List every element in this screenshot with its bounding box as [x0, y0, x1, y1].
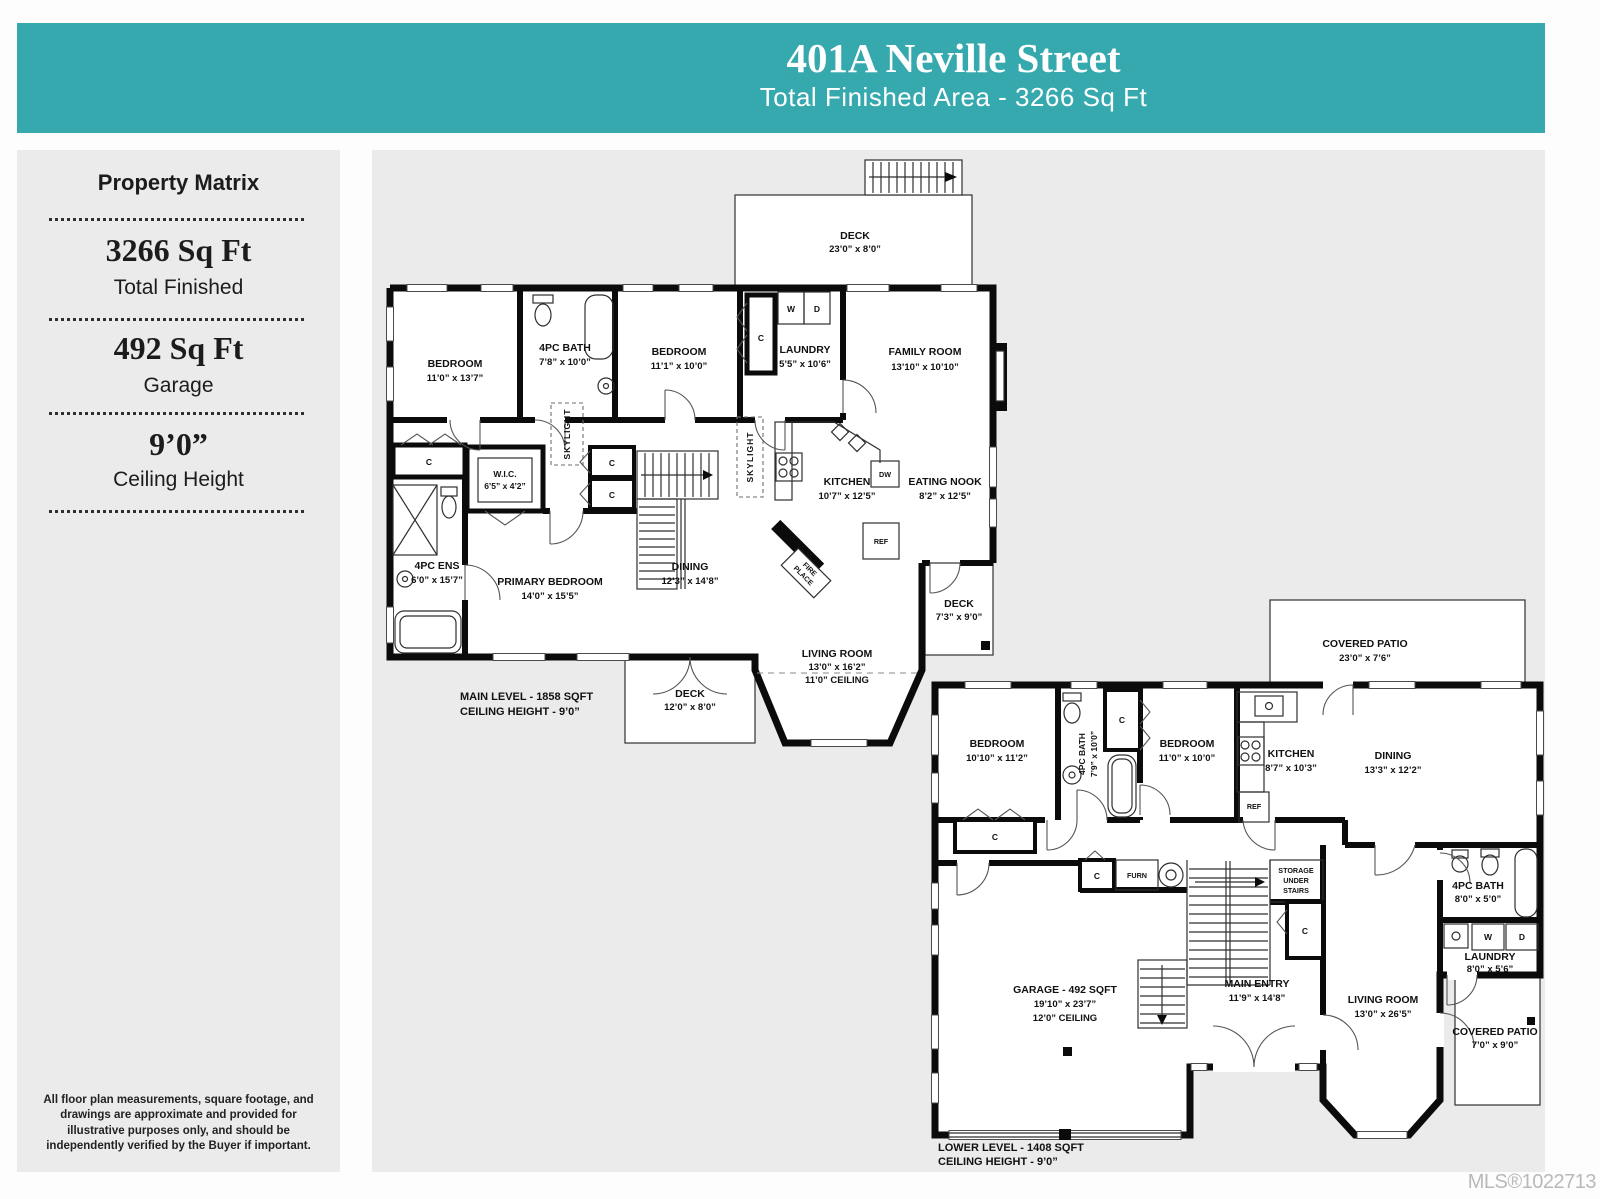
room-label-living: LIVING ROOM [1348, 994, 1419, 1006]
closet-tag: C [426, 457, 432, 467]
room-label-ens: 4PC ENS [415, 560, 460, 572]
room-extra-living: 11’0” CEILING [805, 675, 869, 686]
room-label-bath2: 4PC BATH [1452, 880, 1504, 892]
room-label-bedroom1: BEDROOM [970, 738, 1025, 750]
stat-total-finished-label: Total Finished [17, 276, 340, 300]
main-level-footer2: CEILING HEIGHT - 9’0” [460, 706, 580, 718]
stat-garage-label: Garage [17, 374, 340, 398]
room-dims-bedroom2: 11’0” x 10’0” [1159, 753, 1216, 764]
room-label-bath: 4PC BATH [539, 342, 591, 354]
room-label-laundry2: LAUNDRY [1465, 951, 1516, 963]
room-label-living: LIVING ROOM [802, 648, 873, 660]
room-label-garage: GARAGE - 492 SQFT [1013, 984, 1117, 996]
room-dims-bedroom2: 11’1” x 10’0” [651, 361, 708, 372]
room-label-laundry: LAUNDRY [780, 344, 831, 356]
header-banner: 401A Neville Street Total Finished Area … [17, 23, 1545, 133]
room-dims-entry: 11’9” x 14’8” [1229, 993, 1286, 1004]
room-label-patio-top: COVERED PATIO [1322, 638, 1407, 650]
property-matrix-title: Property Matrix [17, 170, 340, 196]
stat-ceiling-label: Ceiling Height [17, 468, 340, 492]
property-matrix-panel: Property Matrix 3266 Sq Ft Total Finishe… [17, 150, 340, 1172]
room-dims-laundry: 5’5” x 10’6” [779, 359, 831, 370]
lower-level-plan: COVERED PATIO 23’0” x 7’6” BEDROOM 10’10… [925, 595, 1545, 1170]
garage-door [949, 1129, 1181, 1140]
bottom-deck [625, 657, 755, 743]
room-dims-bedroom1: 10’10” x 11’2” [966, 753, 1028, 764]
dryer-tag: D [814, 304, 820, 314]
mls-number: MLS®1022713 [1468, 1171, 1596, 1194]
room-label-dining: DINING [1375, 750, 1412, 762]
closet-tag: C [992, 832, 998, 842]
room-dims-garage: 19’10” x 23’7” [1034, 999, 1097, 1010]
dotted-divider [49, 412, 304, 415]
dryer-tag: D [1519, 932, 1525, 942]
room-label-dining: DINING [672, 561, 709, 573]
room-dims-family: 13’10” x 10’10” [891, 362, 959, 373]
room-label-deck-top: DECK [840, 230, 870, 242]
room-label-entry: MAIN ENTRY [1225, 978, 1290, 990]
storage-label: STORAGE [1278, 866, 1314, 875]
stat-garage-value: 492 Sq Ft [17, 330, 340, 367]
room-label-patio-br: COVERED PATIO [1452, 1026, 1537, 1038]
room-dims-bath: 7’8” x 10’0” [539, 357, 591, 368]
closet-tag: C [1119, 715, 1125, 725]
room-dims-nook: 8’2” x 12’5” [919, 491, 971, 502]
stat-total-finished-value: 3266 Sq Ft [17, 232, 340, 269]
floorplan-panel: DECK 23’0” x 8’0” BEDROOM 11’0” x 13’7” … [372, 150, 1545, 1172]
fridge-tag: REF [874, 537, 889, 546]
room-dims-living: 13’0” x 26’5” [1354, 1009, 1411, 1020]
room-dims-kitchen: 8’7” x 10’3” [1265, 763, 1317, 774]
lower-level-footer1: LOWER LEVEL - 1408 SQFT [938, 1142, 1084, 1154]
main-level-footer1: MAIN LEVEL - 1858 SQFT [460, 691, 593, 703]
skylight-label: SKYLIGHT [745, 432, 755, 483]
dotted-divider [49, 318, 304, 321]
lower-level-footer2: CEILING HEIGHT - 9’0” [938, 1156, 1058, 1168]
furnace-tag: FURN [1127, 871, 1147, 880]
room-dims-bath: 7’9” x 10’0” [1089, 731, 1099, 777]
room-label-primary: PRIMARY BEDROOM [497, 576, 603, 588]
room-dims-patio-top: 23’0” x 7’6” [1339, 653, 1391, 664]
storage-label: STAIRS [1283, 886, 1309, 895]
room-label-bath: 4PC BATH [1077, 733, 1087, 775]
room-dims-ens: 6’0” x 15’7” [411, 575, 463, 586]
room-dims-deck-bottom: 12’0” x 8’0” [664, 702, 716, 713]
room-dims-primary: 14’0” x 15’5” [521, 591, 578, 602]
room-dims-laundry2: 8’0” x 5’6” [1467, 964, 1514, 975]
floorplan-page: 401A Neville Street Total Finished Area … [0, 0, 1600, 1199]
room-label-wic: W.I.C. [493, 469, 516, 479]
fridge-tag: REF [1247, 802, 1262, 811]
room-dims-dining: 12’3” x 14’8” [661, 576, 718, 587]
dotted-divider [49, 218, 304, 221]
page-title: 401A Neville Street [362, 36, 1545, 80]
closet-tag: C [609, 490, 615, 500]
room-label-family: FAMILY ROOM [889, 346, 962, 358]
room-dims-bedroom1: 11’0” x 13’7” [427, 373, 484, 384]
dotted-divider [49, 510, 304, 513]
room-dims-deck-top: 23’0” x 8’0” [829, 244, 881, 255]
closet-tag: C [1094, 871, 1100, 881]
room-label-bedroom2: BEDROOM [1160, 738, 1215, 750]
room-extra-garage: 12’0” CEILING [1033, 1013, 1097, 1024]
room-dims-patio-br: 7’0” x 9’0” [1472, 1040, 1519, 1051]
room-dims-living: 13’0” x 16’2” [808, 662, 865, 673]
dishwasher-tag: DW [879, 470, 891, 479]
stat-ceiling-value: 9’0” [17, 426, 340, 463]
room-label-bedroom1: BEDROOM [428, 358, 483, 370]
disclaimer-text: All floor plan measurements, square foot… [37, 1093, 320, 1154]
room-dims-bath2: 8’0” x 5’0” [1455, 894, 1502, 905]
storage-label: UNDER [1283, 876, 1309, 885]
washer-tag: W [1484, 932, 1493, 942]
closet-tag: C [609, 458, 615, 468]
room-label-bedroom2: BEDROOM [652, 346, 707, 358]
room-label-kitchen: KITCHEN [1268, 748, 1315, 760]
room-dims-dining: 13’3” x 12’2” [1364, 765, 1421, 776]
room-label-nook: EATING NOOK [908, 476, 982, 488]
closet-tag: C [1302, 926, 1308, 936]
skylight-label: SKYLIGHT [562, 409, 572, 460]
main-level-plan: DECK 23’0” x 8’0” BEDROOM 11’0” x 13’7” … [385, 155, 1005, 767]
room-dims-kitchen: 10’7” x 12’5” [818, 491, 875, 502]
washer-tag: W [787, 304, 796, 314]
room-label-kitchen: KITCHEN [824, 476, 871, 488]
room-dims-wic: 6’5” x 4’2” [484, 481, 526, 491]
page-subtitle: Total Finished Area - 3266 Sq Ft [362, 80, 1545, 114]
closet-tag: C [758, 333, 764, 343]
room-label-deck-bottom: DECK [675, 688, 705, 700]
